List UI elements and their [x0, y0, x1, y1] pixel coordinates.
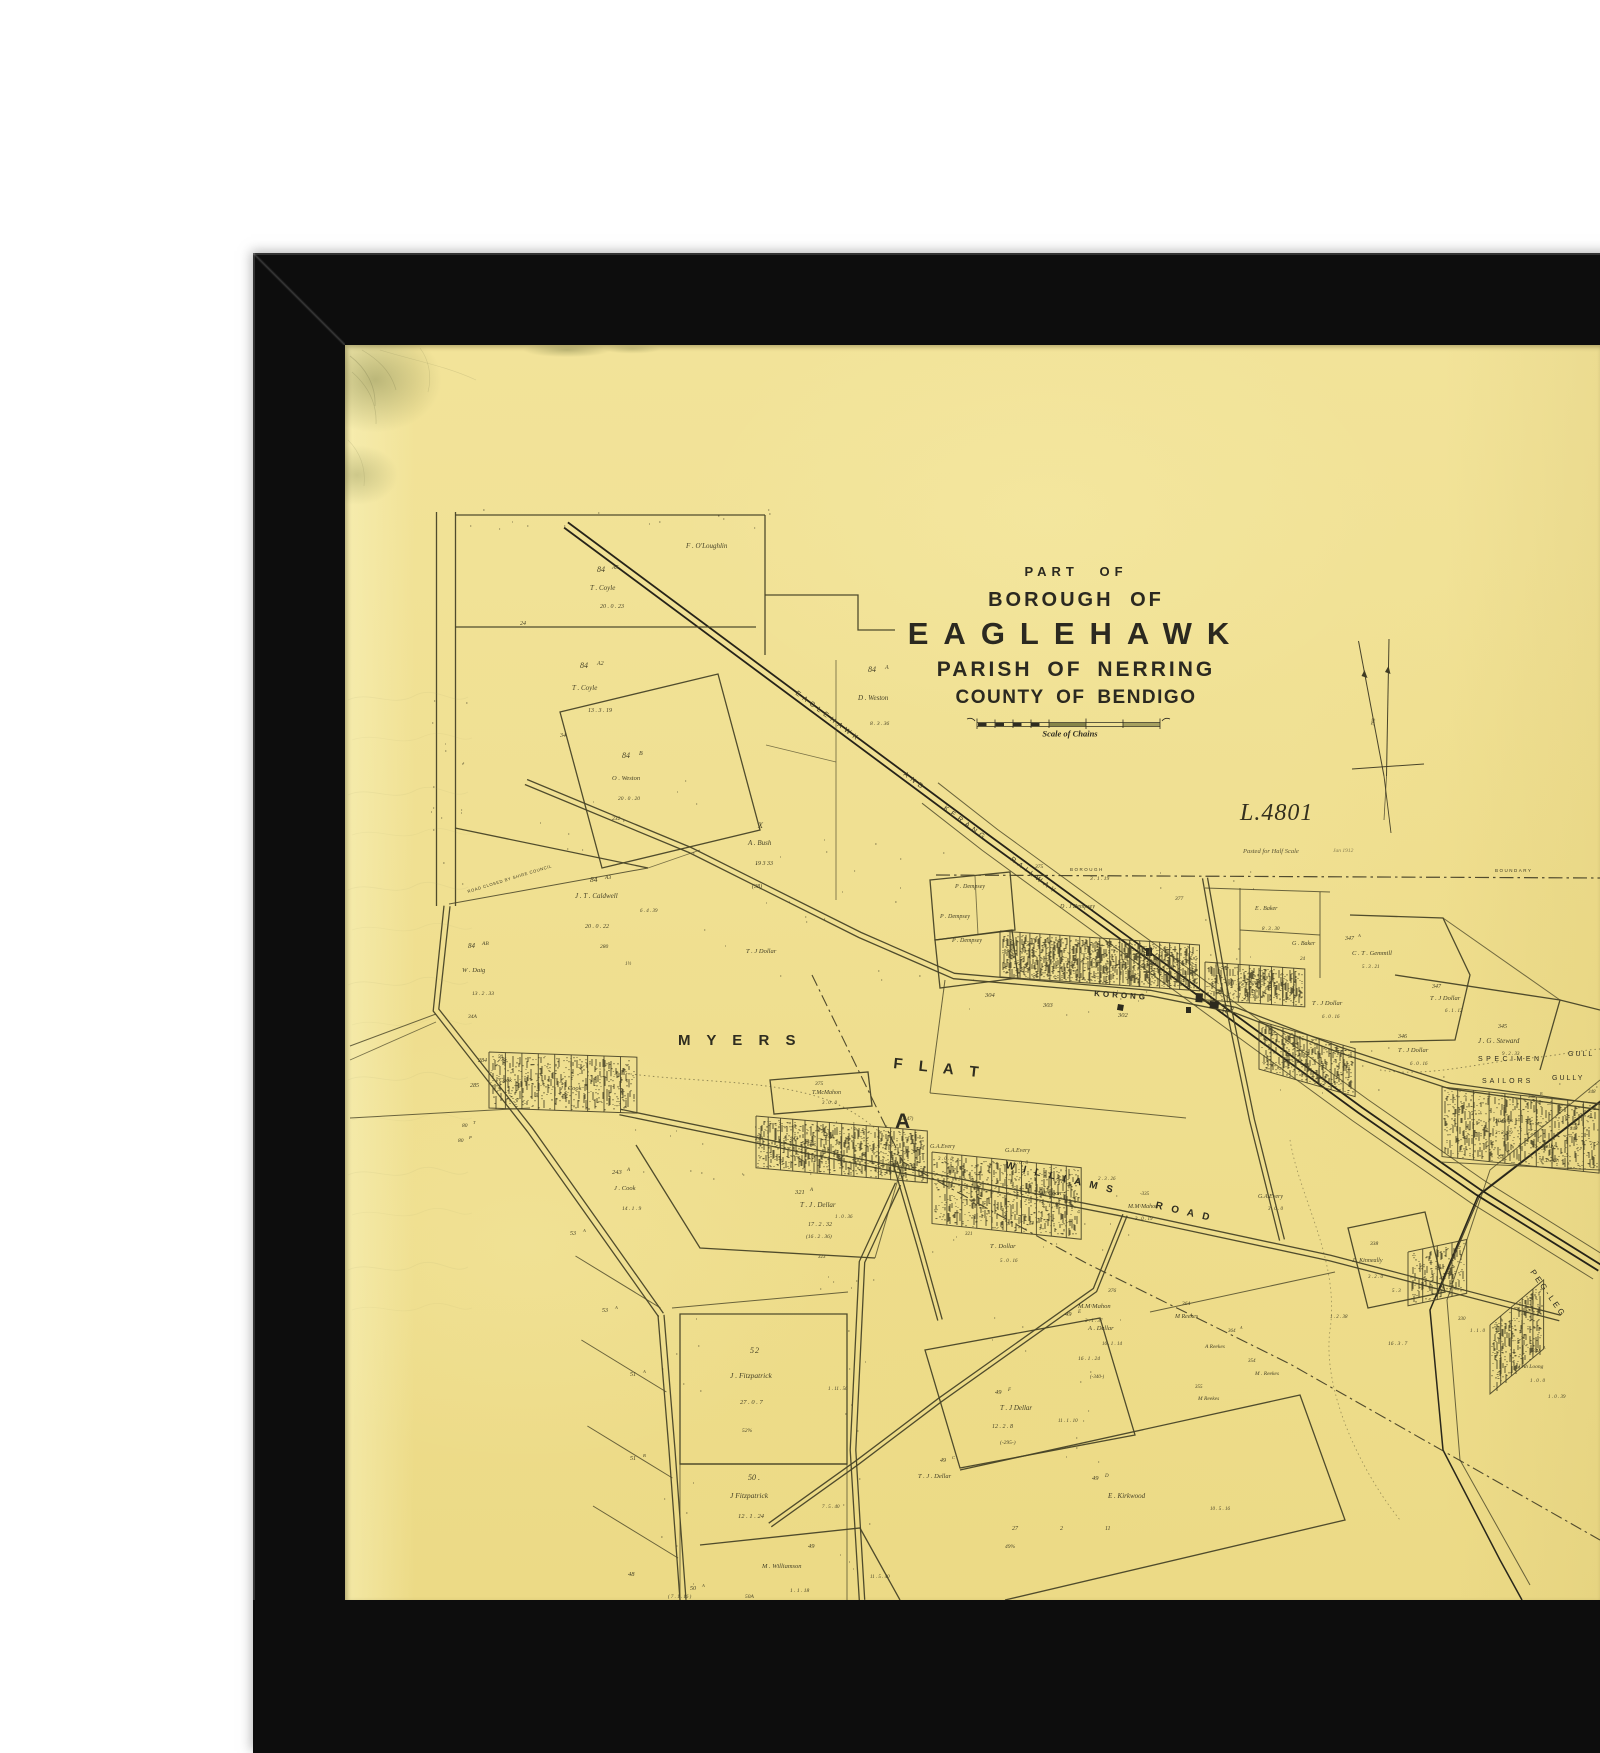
svg-text:347: 347 — [1344, 935, 1355, 942]
svg-text:3 . 0 . 0: 3 . 0 . 0 — [1013, 1161, 1029, 1166]
svg-text:A: A — [1542, 1345, 1546, 1350]
svg-text:GULL: GULL — [1568, 1051, 1594, 1058]
svg-text:302: 302 — [1117, 1012, 1129, 1019]
svg-text:50A: 50A — [745, 1594, 755, 1600]
svg-text:49: 49 — [995, 1389, 1002, 1396]
svg-text:J . T . Caldwell: J . T . Caldwell — [575, 892, 618, 900]
svg-text:3 . 1 . 37: 3 . 1 . 37 — [1085, 1319, 1103, 1324]
svg-text:1½: 1½ — [625, 962, 632, 967]
svg-text:M Reekes: M Reekes — [1197, 1396, 1219, 1402]
svg-text:84: 84 — [468, 942, 476, 950]
svg-text:9 . 2 . 33: 9 . 2 . 33 — [1502, 1052, 1520, 1057]
svg-text:SAILORS: SAILORS — [1482, 1078, 1533, 1085]
svg-text:346: 346 — [1397, 1033, 1407, 1040]
svg-text:F . Higgins: F . Higgins — [1487, 1118, 1513, 1124]
svg-text:1 . 1 . 18: 1 . 1 . 18 — [790, 1588, 810, 1594]
svg-text:Ah Coon: Ah Coon — [1039, 1191, 1061, 1197]
svg-text:304: 304 — [984, 992, 996, 999]
svg-text:84: 84 — [868, 665, 876, 674]
svg-text:321: 321 — [794, 1189, 805, 1196]
svg-text:(-295-): (-295-) — [1000, 1439, 1016, 1446]
svg-text:3 . 0 . 0: 3 . 0 . 0 — [938, 1157, 954, 1162]
svg-text:D . J Dempsey: D . J Dempsey — [1059, 904, 1095, 910]
svg-text:X: X — [757, 821, 764, 830]
svg-text:E . Baker: E . Baker — [1254, 906, 1278, 912]
svg-text:(-340-): (-340-) — [1090, 1375, 1104, 1380]
svg-text:323: 323 — [818, 1255, 826, 1260]
svg-text:(38): (38) — [752, 883, 762, 890]
svg-text:D: D — [1230, 1006, 1234, 1012]
svg-text:R: R — [1222, 1008, 1228, 1015]
svg-text:52: 52 — [750, 1346, 760, 1355]
svg-text:ROAD CLOSED BY SHIRE COUNCIL: ROAD CLOSED BY SHIRE COUNCIL — [467, 863, 553, 894]
svg-text:D . Weston: D . Weston — [857, 694, 889, 702]
svg-text:P . Dempsey: P . Dempsey — [939, 914, 970, 920]
svg-text:C . Kelly: C . Kelly — [1532, 1143, 1555, 1150]
svg-text:2 . 2: 2 . 2 — [1590, 1142, 1599, 1147]
svg-text:A: A — [1357, 933, 1361, 938]
svg-text:8 . 3 . 30: 8 . 3 . 30 — [1262, 927, 1280, 932]
svg-text:B: B — [1540, 1091, 1543, 1096]
svg-text:A: A — [614, 1305, 618, 1310]
svg-text:364: 364 — [1228, 1329, 1236, 1334]
svg-text:BOUNDARY: BOUNDARY — [1495, 868, 1532, 873]
svg-text:24: 24 — [1300, 957, 1306, 962]
svg-text:T: T — [473, 1120, 476, 1125]
svg-text:J Fitzpatrick: J Fitzpatrick — [730, 1491, 769, 1500]
svg-text:13 . 3 . 19: 13 . 3 . 19 — [588, 708, 612, 714]
svg-text:2 . 1 . 38: 2 . 1 . 38 — [1042, 1204, 1060, 1209]
svg-text:4 . 0 . 15: 4 . 0 . 15 — [1540, 1159, 1558, 1164]
svg-text:34: 34 — [559, 732, 566, 739]
svg-text:375: 375 — [814, 1081, 824, 1087]
svg-text:A: A — [582, 1228, 586, 1233]
svg-text:330: 330 — [1458, 1317, 1466, 1322]
svg-text:Jan 1912: Jan 1912 — [1333, 848, 1354, 854]
svg-text:375: 375 — [1034, 864, 1044, 870]
svg-text:6 . 1 . 12: 6 . 1 . 12 — [1445, 1009, 1463, 1014]
svg-text:284: 284 — [478, 1057, 487, 1064]
svg-text:J Cook: J Cook — [495, 1078, 512, 1084]
svg-text:3 . 0 . 0: 3 . 0 . 0 — [822, 1101, 838, 1106]
svg-text:T . Coyle: T . Coyle — [590, 584, 615, 592]
svg-text:A Reekes: A Reekes — [1204, 1344, 1225, 1350]
svg-text:G.A.Every: G.A.Every — [1258, 1194, 1283, 1200]
svg-text:1 . 11 . 56: 1 . 11 . 56 — [828, 1387, 848, 1392]
svg-text:53: 53 — [602, 1308, 608, 1314]
svg-text:P . Dempsey: P . Dempsey — [954, 884, 985, 890]
svg-text:T . Dollar: T . Dollar — [990, 1243, 1016, 1250]
svg-text:A . Dellar: A . Dellar — [1087, 1325, 1114, 1332]
svg-text:321: 321 — [965, 1232, 973, 1237]
svg-text:J . Kinneally: J . Kinneally — [1352, 1258, 1383, 1264]
svg-text:338: 338 — [1369, 1241, 1379, 1247]
svg-text:49: 49 — [808, 1543, 815, 1550]
svg-text:241: 241 — [825, 1133, 834, 1140]
svg-text:51: 51 — [630, 1372, 636, 1378]
svg-text:BOROUGH: BOROUGH — [1070, 867, 1104, 872]
svg-text:348: 348 — [1588, 1090, 1596, 1095]
svg-text:285: 285 — [470, 1083, 479, 1089]
svg-text:16 . 1 . 24: 16 . 1 . 24 — [1078, 1355, 1100, 1362]
svg-text:10 . 5 . 16: 10 . 5 . 16 — [1210, 1507, 1231, 1512]
svg-text:F L A T: F L A T — [893, 1055, 986, 1081]
svg-text:F: F — [1007, 1388, 1012, 1393]
svg-text:345: 345 — [1497, 1023, 1507, 1030]
svg-text:16 . 3 . 7: 16 . 3 . 7 — [1388, 1341, 1408, 1347]
svg-text:49: 49 — [1092, 1475, 1099, 1482]
svg-text:D: D — [1104, 1474, 1109, 1479]
svg-text:B: B — [643, 1453, 646, 1458]
svg-text:C: C — [952, 1455, 956, 1460]
svg-text:M.MᶜMahon: M.MᶜMahon — [1077, 1303, 1111, 1310]
svg-text:17 . 2 . 32: 17 . 2 . 32 — [808, 1222, 832, 1228]
svg-text:347: 347 — [1431, 983, 1442, 990]
svg-text:7 . 5 . 40: 7 . 5 . 40 — [822, 1505, 840, 1510]
svg-text:Pasted for Half Scale: Pasted for Half Scale — [1242, 848, 1299, 855]
svg-text:2 . 3 . 26: 2 . 3 . 26 — [1098, 1177, 1116, 1182]
svg-text:M . Williamson: M . Williamson — [761, 1563, 802, 1570]
svg-text:271: 271 — [1055, 1179, 1064, 1185]
svg-text:3 . 1 . 19: 3 . 1 . 19 — [1089, 876, 1110, 882]
svg-text:13 . 2 . 33: 13 . 2 . 33 — [472, 991, 494, 997]
svg-text:232: 232 — [612, 816, 621, 822]
svg-text:1 . 1 . 0: 1 . 1 . 0 — [1470, 1329, 1486, 1334]
svg-text:52%: 52% — [742, 1428, 753, 1434]
svg-text:A: A — [642, 1369, 646, 1374]
svg-text:27: 27 — [1012, 1526, 1019, 1532]
svg-text:84: 84 — [597, 565, 605, 574]
svg-text:80: 80 — [462, 1123, 468, 1129]
svg-text:5 . 0 . 16: 5 . 0 . 16 — [1000, 1259, 1018, 1264]
svg-text:3 . 0 . 19: 3 . 0 . 19 — [1135, 1217, 1153, 1222]
svg-text:49: 49 — [1065, 1311, 1072, 1318]
svg-text:T . J Dollar: T . J Dollar — [1398, 1047, 1429, 1054]
svg-text:376: 376 — [1107, 1288, 1117, 1294]
svg-text:49: 49 — [940, 1457, 946, 1464]
svg-text:11: 11 — [1105, 1526, 1111, 1532]
svg-text:E . Kirkwood: E . Kirkwood — [1107, 1492, 1146, 1500]
svg-text:P: P — [468, 1135, 472, 1140]
svg-text:W . Daig: W . Daig — [462, 967, 486, 974]
svg-text:330: 330 — [1532, 1349, 1540, 1354]
svg-text:-335: -335 — [1140, 1192, 1150, 1197]
svg-text:20 . 0 . 23: 20 . 0 . 23 — [600, 604, 624, 610]
svg-text:A: A — [1239, 1325, 1243, 1330]
svg-text:G.A.Every: G.A.Every — [1005, 1148, 1030, 1154]
svg-text:303: 303 — [1042, 1002, 1054, 1009]
svg-text:5 . 3 . 21: 5 . 3 . 21 — [1362, 965, 1380, 970]
svg-text:80: 80 — [458, 1138, 464, 1144]
svg-text:19 3 33: 19 3 33 — [755, 861, 773, 867]
svg-text:T . Coyle: T . Coyle — [572, 684, 597, 692]
svg-text:y J . F . Coyne: y J . F . Coyne — [1227, 981, 1260, 987]
svg-text:P . Dempsey: P . Dempsey — [951, 938, 982, 944]
svg-text:243: 243 — [755, 1135, 764, 1142]
svg-text:C . T . Gemmill: C . T . Gemmill — [1352, 950, 1392, 957]
svg-text:AB: AB — [481, 941, 489, 947]
svg-text:348: 348 — [1570, 1127, 1578, 1132]
svg-text:O . Weston: O . Weston — [612, 775, 640, 782]
svg-text:A: A — [809, 1188, 814, 1193]
svg-text:6 . 0 . 16: 6 . 0 . 16 — [1322, 1015, 1340, 1020]
svg-text:R O A D: R O A D — [1154, 1200, 1213, 1224]
svg-text:51: 51 — [630, 1456, 636, 1462]
svg-text:J.Ah Loong: J.Ah Loong — [1518, 1364, 1544, 1370]
svg-text:A . Bush: A . Bush — [747, 839, 772, 847]
svg-text:Scale of Chains: Scale of Chains — [1042, 729, 1098, 739]
svg-text:A: A — [884, 665, 889, 671]
svg-text:E: E — [1077, 1310, 1081, 1315]
svg-text:1 . 0 . 0: 1 . 0 . 0 — [1530, 1379, 1546, 1384]
svg-text:J . Fitzpatrick: J . Fitzpatrick — [730, 1371, 773, 1380]
svg-text:53: 53 — [570, 1231, 576, 1237]
svg-text:GULLY: GULLY — [1552, 1075, 1584, 1082]
svg-text:8 . 3 . 36: 8 . 3 . 36 — [870, 721, 890, 727]
svg-text:M.MᶜMahon: M.MᶜMahon — [1127, 1204, 1158, 1210]
svg-text:3 . 2 . 0: 3 . 2 . 0 — [1368, 1275, 1384, 1280]
svg-text:50 .: 50 . — [748, 1473, 760, 1482]
svg-text:11 . 1 . 10: 11 . 1 . 10 — [1058, 1419, 1078, 1424]
svg-text:6 . 4 . 39: 6 . 4 . 39 — [640, 909, 658, 914]
svg-text:RAILWAY: RAILWAY — [1009, 856, 1060, 897]
svg-text:J . Cook: J . Cook — [614, 1185, 636, 1192]
svg-text:M Y E R S: M Y E R S — [678, 1032, 801, 1049]
svg-text:A5: A5 — [611, 565, 619, 571]
svg-text:12 . 2 . 8: 12 . 2 . 8 — [992, 1424, 1013, 1430]
svg-text:M Reekes: M Reekes — [1174, 1314, 1199, 1320]
svg-text:F . O'Loughlin: F . O'Loughlin — [685, 542, 728, 550]
svg-text:1 . 0 . 39: 1 . 0 . 39 — [1548, 1395, 1566, 1400]
svg-text:KORONG: KORONG — [1094, 989, 1148, 1002]
svg-text:A: A — [626, 1168, 631, 1173]
svg-text:27 . 0 . 7: 27 . 0 . 7 — [740, 1399, 764, 1406]
svg-text:T . J . Dellar: T . J . Dellar — [918, 1473, 952, 1480]
svg-text:49%: 49% — [1005, 1543, 1016, 1550]
svg-text:243: 243 — [612, 1169, 623, 1176]
svg-text:3 . 0 . 0: 3 . 0 . 0 — [1268, 1207, 1284, 1212]
svg-text:2: 2 — [1060, 1526, 1063, 1532]
svg-text:364: 364 — [1181, 1300, 1191, 1307]
svg-text:355: 355 — [1195, 1385, 1203, 1390]
svg-text:G.A.Every: G.A.Every — [930, 1144, 955, 1150]
svg-text:B: B — [639, 751, 643, 757]
svg-text:16 . 1 . 14: 16 . 1 . 14 — [1102, 1342, 1123, 1347]
svg-text:J . G . Steward: J . G . Steward — [1478, 1037, 1520, 1045]
svg-text:12 . 1 . 24: 12 . 1 . 24 — [738, 1513, 765, 1520]
svg-text:T . J Dollar: T . J Dollar — [746, 948, 777, 955]
svg-text:J . F Coyne: J . F Coyne — [1238, 994, 1264, 1000]
svg-text:377: 377 — [1174, 896, 1184, 902]
svg-text:50: 50 — [498, 1055, 504, 1060]
svg-text:243: 243 — [790, 1135, 799, 1142]
svg-text:G . Baker: G . Baker — [1292, 941, 1316, 947]
svg-text:M . Reekes: M . Reekes — [1254, 1371, 1279, 1377]
svg-text:A3: A3 — [604, 875, 611, 881]
svg-text:48: 48 — [628, 1571, 635, 1578]
svg-text:T.McMahon: T.McMahon — [812, 1090, 841, 1096]
svg-text:(3147): (3147) — [900, 1117, 914, 1122]
svg-text:1 . 2 . 38: 1 . 2 . 38 — [1330, 1315, 1348, 1320]
svg-text:T . J . Dellar: T . J . Dellar — [800, 1201, 836, 1209]
svg-text:5 . 3: 5 . 3 — [1392, 1289, 1401, 1294]
svg-text:354: 354 — [1248, 1359, 1256, 1364]
svg-text:84: 84 — [590, 875, 598, 884]
svg-text:A2: A2 — [596, 661, 604, 667]
svg-text:84: 84 — [622, 751, 630, 760]
svg-text:(16 . 2 . 36): (16 . 2 . 36) — [806, 1233, 832, 1240]
svg-text:1 . 0 . 36: 1 . 0 . 36 — [835, 1215, 853, 1220]
svg-text:20 . 0 . 20: 20 . 0 . 20 — [618, 796, 640, 802]
svg-text:24: 24 — [520, 620, 526, 627]
svg-text:L.4801: L.4801 — [1239, 800, 1313, 826]
svg-text:T . J Dollar: T . J Dollar — [1430, 995, 1461, 1002]
svg-text:3 . 3 . 29: 3 . 3 . 29 — [1495, 1131, 1513, 1136]
svg-text:11 . 5 . 40: 11 . 5 . 40 — [870, 1575, 890, 1580]
svg-text:785: 785 — [1371, 718, 1377, 727]
svg-text:20 . 0 . 22: 20 . 0 . 22 — [585, 924, 609, 930]
svg-text:280: 280 — [600, 944, 609, 950]
svg-text:34A: 34A — [467, 1013, 478, 1020]
svg-text:A: A — [701, 1583, 705, 1588]
svg-text:EAGLEHAWK: EAGLEHAWK — [794, 690, 862, 744]
svg-text:14 . 1 . 9: 14 . 1 . 9 — [622, 1205, 642, 1212]
svg-text:SPECIMEN: SPECIMEN — [1478, 1056, 1543, 1063]
svg-text:T . J Dollar: T . J Dollar — [1312, 1000, 1343, 1007]
svg-text:T . J Dellar: T . J Dellar — [1000, 1404, 1032, 1412]
svg-text:J . Cook: J . Cook — [560, 1085, 582, 1092]
svg-text:84: 84 — [580, 661, 588, 670]
svg-text:6 . 0 . 16: 6 . 0 . 16 — [1410, 1062, 1428, 1067]
svg-text:( 7 . 1 . 16 ): ( 7 . 1 . 16 ) — [668, 1595, 692, 1600]
svg-text:50: 50 — [690, 1586, 696, 1592]
